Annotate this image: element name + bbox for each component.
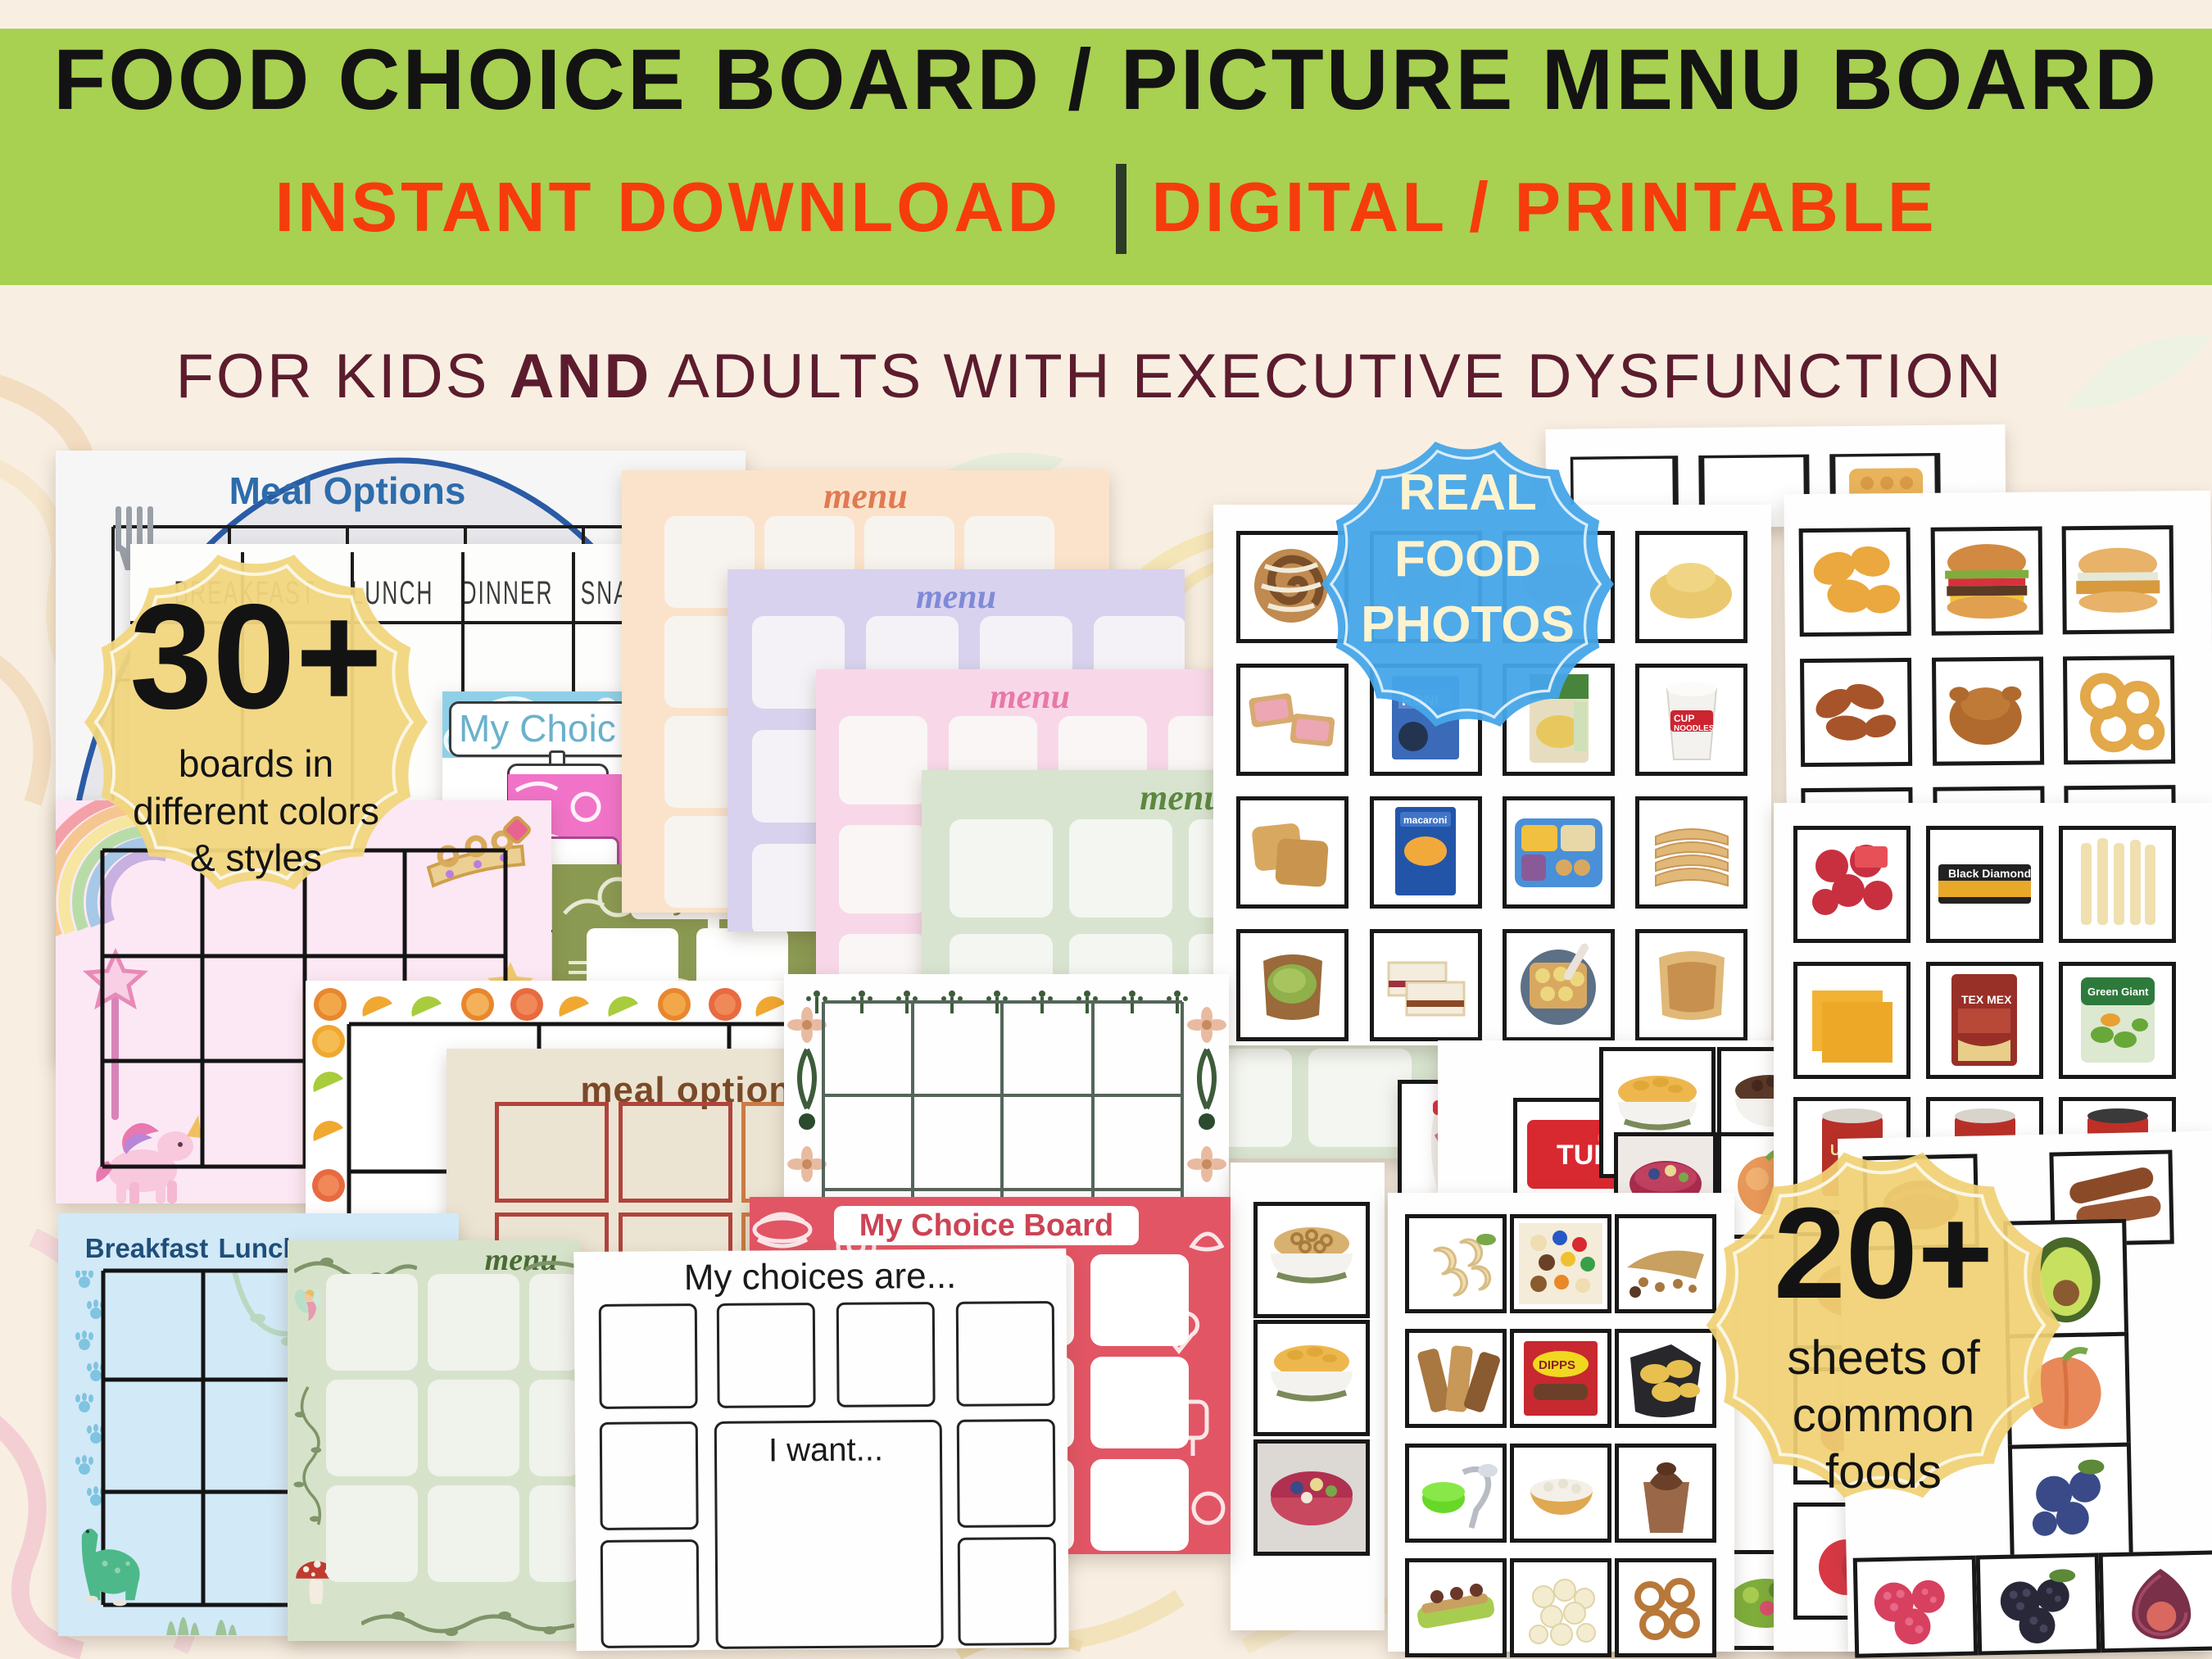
svg-text:Green Giant: Green Giant: [2087, 986, 2149, 998]
svg-text:Black Diamond: Black Diamond: [1948, 867, 2031, 880]
svg-text:macaroni: macaroni: [1403, 814, 1447, 826]
svg-text:TEX MEX: TEX MEX: [1961, 993, 2012, 1006]
svg-text:CUP: CUP: [1674, 713, 1694, 724]
svg-text:DIPPS: DIPPS: [1539, 1358, 1575, 1372]
svg-text:NOODLES: NOODLES: [1674, 724, 1715, 733]
